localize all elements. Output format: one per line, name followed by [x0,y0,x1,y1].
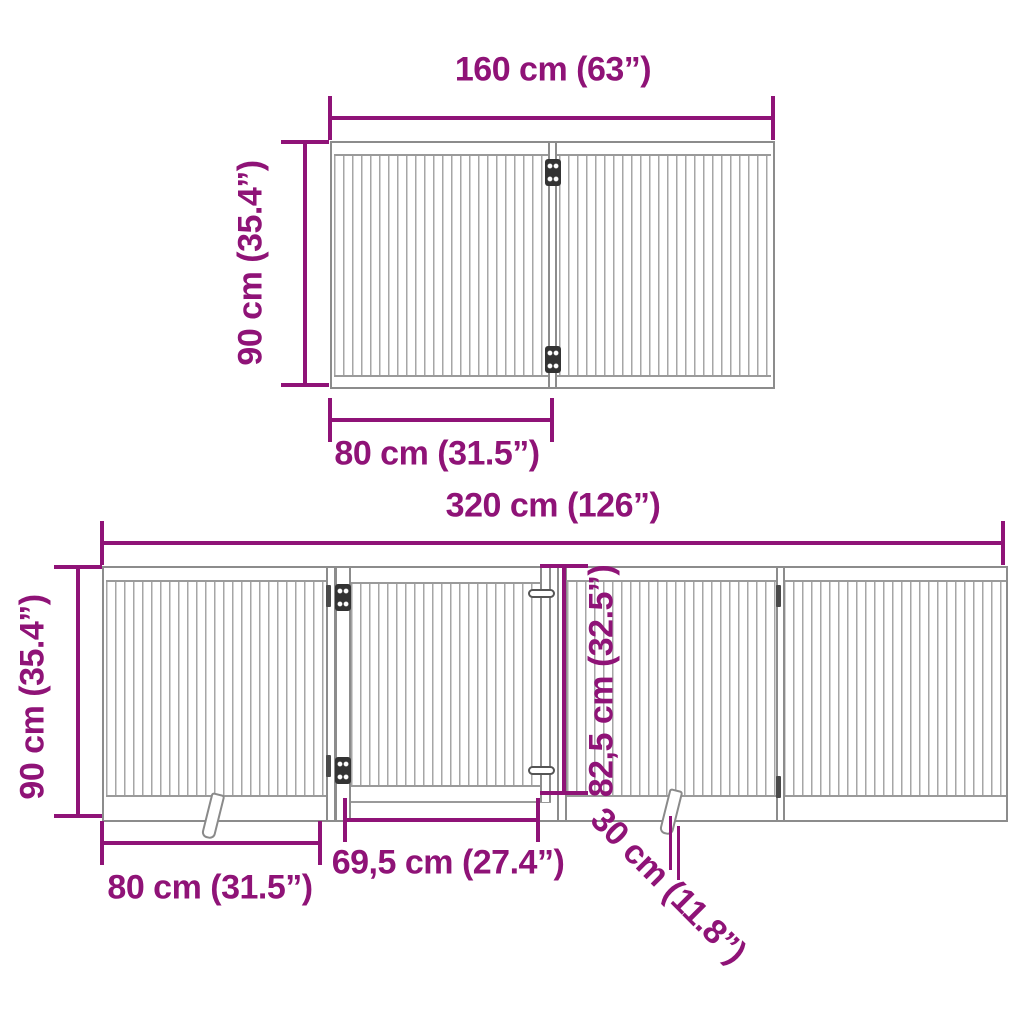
top-panel-width-dimension-label: 80 cm (31.5”) [334,435,539,474]
dimension-tick [536,798,540,842]
dimension-tick [771,96,775,140]
top-width-dimension-line [330,116,775,120]
door-height-dimension-line [562,566,566,795]
door-bottom-rail [351,801,551,803]
gate-slats [106,580,326,797]
hinge-pin-icon [776,776,781,798]
door-width-dimension-line [345,818,539,822]
door-width-dimension-label: 69,5 cm (27.4”) [332,844,565,883]
dimension-tick [1001,521,1005,565]
dimension-tick [328,398,332,442]
hinge-icon [335,584,351,611]
hinge-icon [335,757,351,784]
dimension-tick [343,798,347,842]
latch-icon [528,766,555,775]
bottom-panel-width-dimension-line [102,841,322,845]
dimension-tick [550,398,554,442]
bottom-height-dimension-line [76,567,80,818]
hinge-pin-icon [326,755,331,777]
door-height-dimension-label: 82,5 cm (32.5”) [583,565,622,798]
top-height-dimension-label: 90 cm (35.4”) [232,160,271,365]
dimension-tick [100,821,104,865]
top-width-dimension-label: 160 cm (63”) [455,51,651,90]
bottom-width-dimension-label: 320 cm (126”) [446,487,661,526]
bottom-width-dimension-line [102,541,1005,545]
product-dimension-diagram: 160 cm (63”) 90 cm (35.4”) 80 cm (31.5”)… [0,0,1024,1024]
hinge-icon [545,159,561,186]
gate-slats [784,580,1006,797]
bottom-panel-width-dimension-label: 80 cm (31.5”) [107,869,312,908]
dimension-tick [100,521,104,565]
hinge-pin-icon [776,585,781,607]
top-panel-width-dimension-line [330,418,552,422]
dimension-tick [54,814,102,818]
four-panel-gate-with-door [102,566,1008,822]
dimension-tick [540,564,588,568]
dimension-tick [281,383,329,387]
dimension-tick [318,821,322,865]
hinge-pin-icon [326,585,331,607]
bottom-height-dimension-label: 90 cm (35.4”) [14,594,53,799]
dimension-tick [54,565,102,569]
hinge-icon [545,346,561,373]
dimension-tick [540,791,588,795]
top-height-dimension-line [303,142,307,387]
dimension-tick [281,140,329,144]
door-slats [351,582,551,787]
dimension-tick [328,96,332,140]
latch-icon [528,589,555,598]
